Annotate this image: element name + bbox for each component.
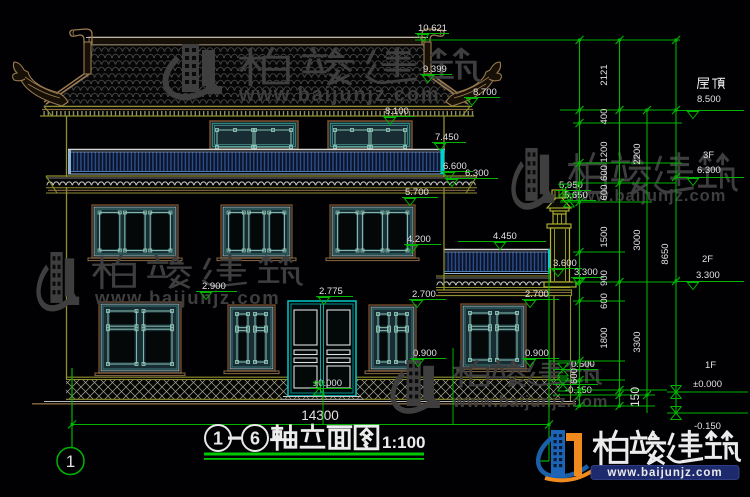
svg-text:1F: 1F (705, 360, 716, 371)
svg-text:14300: 14300 (301, 408, 339, 423)
svg-text:www.baijunjz.com: www.baijunjz.com (606, 467, 722, 479)
svg-text:3300: 3300 (632, 331, 643, 352)
svg-text:8.500: 8.500 (697, 94, 721, 105)
svg-text:9.399: 9.399 (423, 64, 447, 75)
svg-text:0.900: 0.900 (413, 348, 437, 359)
svg-text:6: 6 (250, 429, 260, 449)
svg-text:2.700: 2.700 (412, 289, 436, 300)
svg-text:2200: 2200 (632, 143, 643, 164)
svg-text:6.600: 6.600 (443, 161, 467, 172)
svg-text:0.900: 0.900 (525, 348, 549, 359)
svg-text:5.700: 5.700 (405, 187, 429, 198)
svg-text:3.300: 3.300 (696, 270, 720, 281)
svg-text:-0.150: -0.150 (694, 421, 721, 432)
svg-text:1: 1 (66, 452, 75, 471)
svg-text:2121: 2121 (599, 64, 610, 85)
svg-text:www.baijunjz.com: www.baijunjz.com (238, 84, 440, 106)
svg-text:3.300: 3.300 (574, 267, 598, 278)
svg-text:7.450: 7.450 (435, 132, 459, 143)
svg-text:4.450: 4.450 (493, 231, 517, 242)
svg-text:±0.000: ±0.000 (313, 378, 342, 389)
svg-text:150: 150 (628, 387, 642, 407)
svg-text:www.baijunjz.com: www.baijunjz.com (94, 287, 280, 308)
svg-text:8.700: 8.700 (473, 87, 497, 98)
svg-text:1:100: 1:100 (382, 433, 425, 452)
svg-text:1800: 1800 (599, 327, 610, 348)
svg-text:8.100: 8.100 (385, 106, 409, 117)
svg-text:600: 600 (599, 185, 610, 201)
svg-text:3000: 3000 (632, 229, 643, 250)
svg-text:600: 600 (599, 165, 610, 181)
svg-text:400: 400 (599, 109, 610, 125)
svg-text:10.621: 10.621 (418, 23, 447, 34)
svg-text:2.700: 2.700 (525, 289, 549, 300)
svg-text:3F: 3F (703, 150, 714, 161)
svg-text:4.200: 4.200 (407, 234, 431, 245)
svg-text:2.775: 2.775 (319, 286, 343, 297)
svg-text:6.300: 6.300 (697, 165, 721, 176)
svg-text:2.900: 2.900 (202, 281, 226, 292)
svg-text:±0.000: ±0.000 (693, 379, 722, 390)
svg-text:600: 600 (599, 293, 610, 309)
svg-text:6.300: 6.300 (465, 168, 489, 179)
svg-text:1: 1 (213, 429, 223, 449)
svg-text:600: 600 (569, 368, 580, 384)
svg-text:1500: 1500 (599, 226, 610, 247)
svg-text:1200: 1200 (599, 141, 610, 162)
svg-text:8650: 8650 (660, 243, 671, 264)
svg-text:2F: 2F (702, 254, 713, 265)
svg-text:900: 900 (599, 270, 610, 286)
